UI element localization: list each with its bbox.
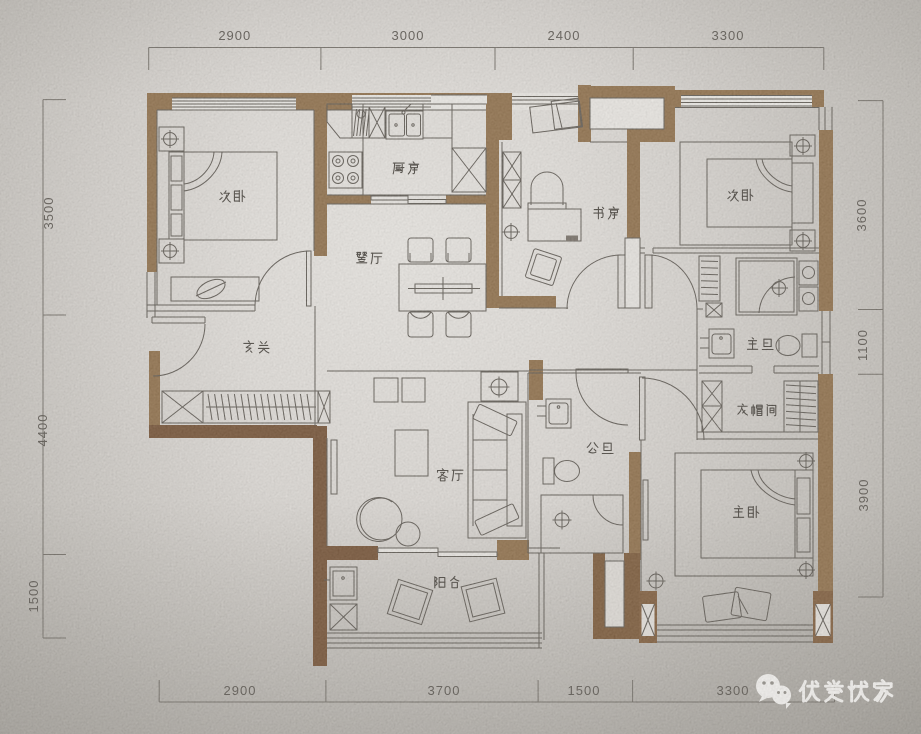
svg-text:4400: 4400 xyxy=(35,414,50,447)
svg-text:2400: 2400 xyxy=(548,28,581,43)
svg-text:2900: 2900 xyxy=(224,683,257,698)
svg-text:1500: 1500 xyxy=(26,580,41,613)
svg-text:3500: 3500 xyxy=(41,197,56,230)
svg-text:3900: 3900 xyxy=(856,479,871,512)
svg-text:2900: 2900 xyxy=(218,28,251,43)
svg-text:1500: 1500 xyxy=(568,683,601,698)
svg-text:3000: 3000 xyxy=(392,28,425,43)
svg-text:3700: 3700 xyxy=(428,683,461,698)
svg-text:3300: 3300 xyxy=(717,683,750,698)
svg-text:3300: 3300 xyxy=(712,28,745,43)
svg-text:3600: 3600 xyxy=(854,199,869,232)
svg-text:1100: 1100 xyxy=(855,329,870,361)
